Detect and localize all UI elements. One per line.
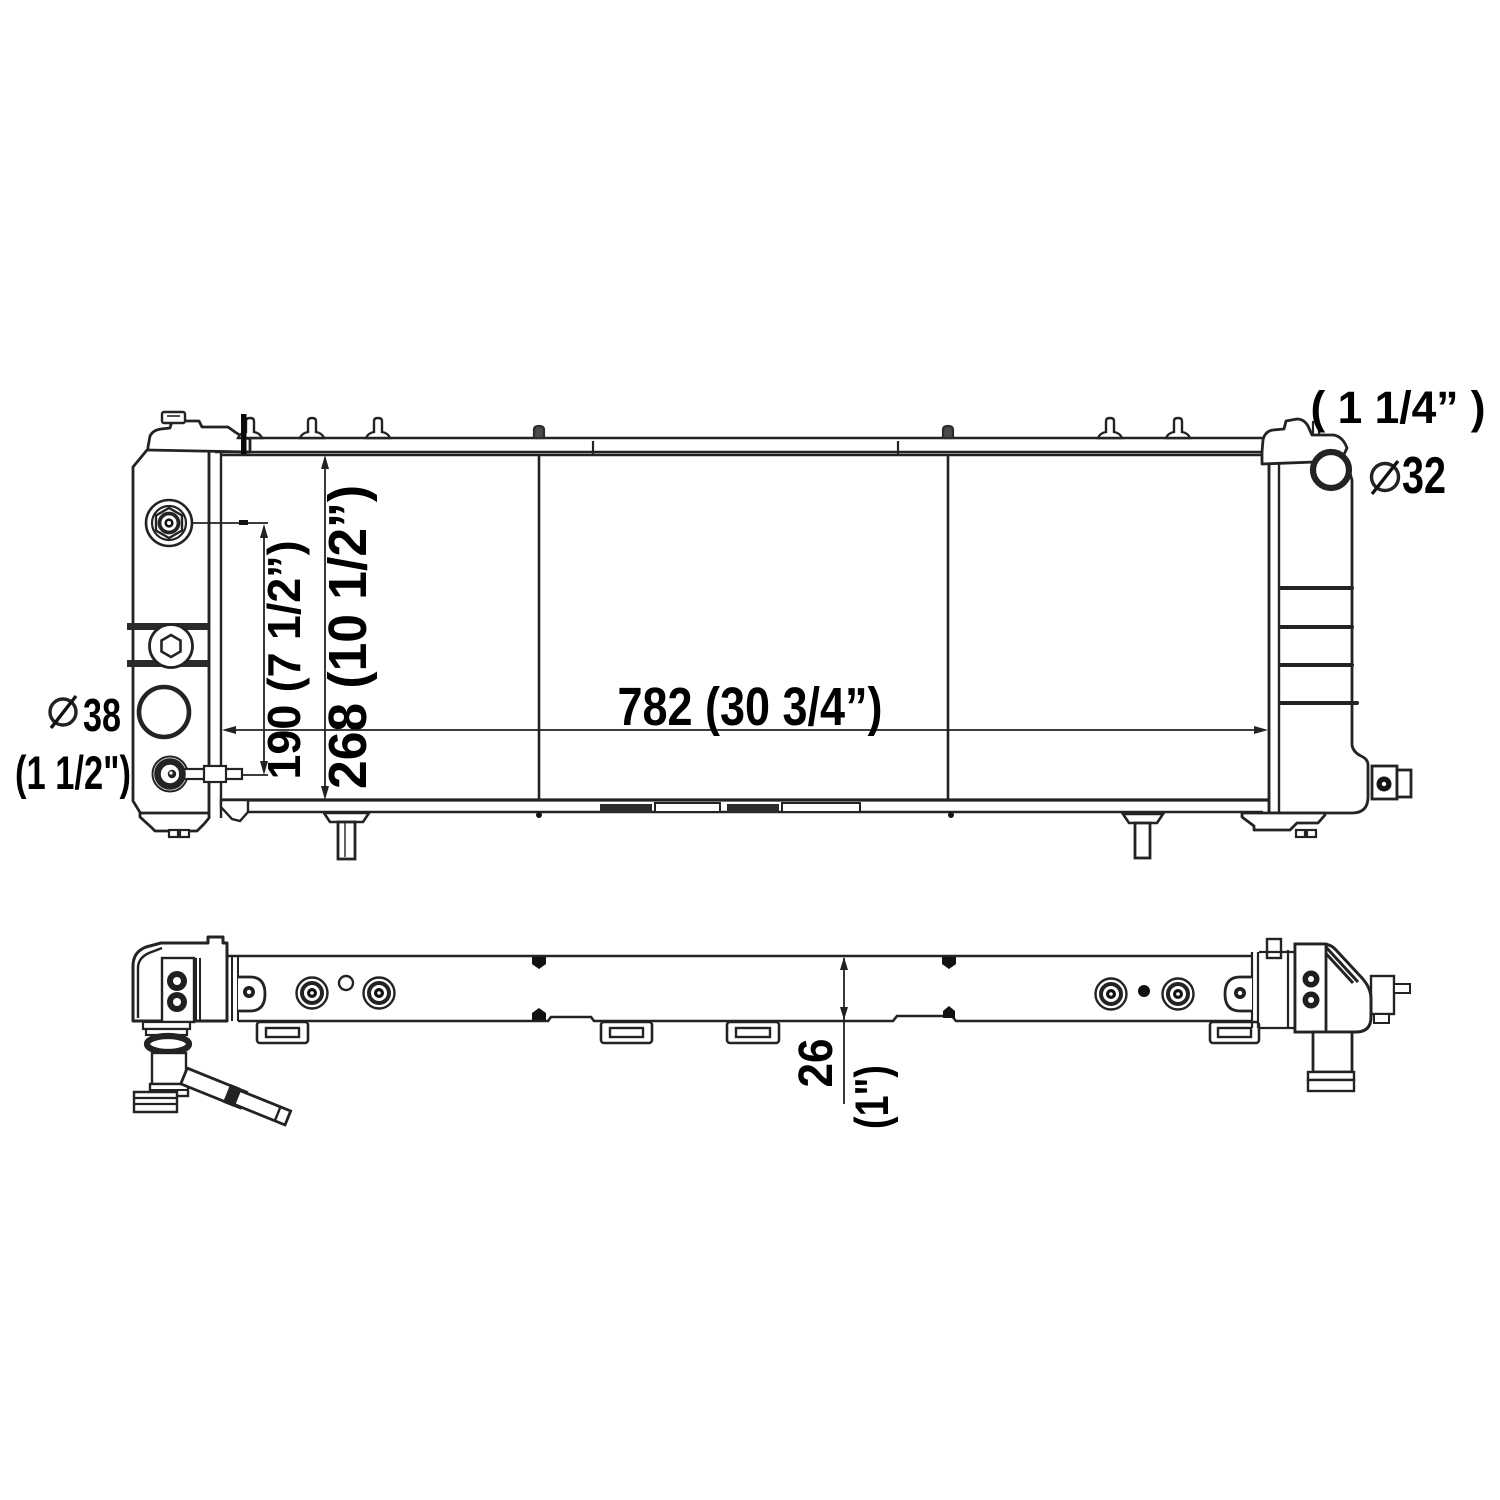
svg-text:268 (10 1/2”): 268 (10 1/2”) bbox=[318, 485, 378, 789]
svg-text:(1"): (1") bbox=[845, 1065, 898, 1129]
svg-text:(1 1/2"): (1 1/2") bbox=[15, 746, 131, 799]
svg-text:32: 32 bbox=[1402, 447, 1446, 505]
svg-text:38: 38 bbox=[83, 689, 121, 741]
svg-text:782 (30 3/4”): 782 (30 3/4”) bbox=[618, 677, 883, 737]
svg-text:26: 26 bbox=[790, 1039, 843, 1088]
svg-text:190 (7 1/2”): 190 (7 1/2”) bbox=[258, 541, 310, 780]
svg-text:( 1 1/4” ): ( 1 1/4” ) bbox=[1311, 382, 1486, 433]
